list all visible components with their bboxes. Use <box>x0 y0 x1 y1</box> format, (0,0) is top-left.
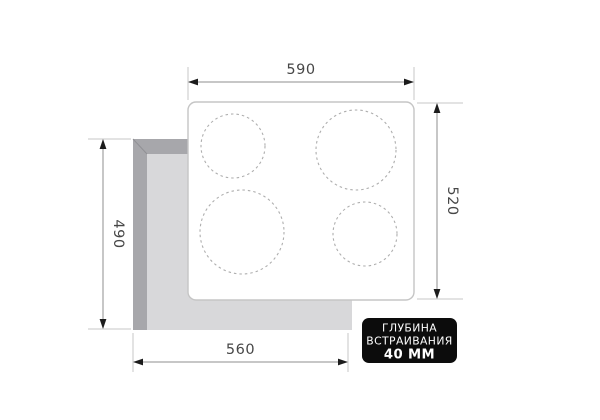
dimension-bottom-width: 560 <box>133 333 348 372</box>
dimension-value-left: 490 <box>110 219 126 248</box>
arrow-left-icon <box>188 79 198 86</box>
dimension-value-top: 590 <box>286 62 315 78</box>
arrow-right-icon <box>404 79 414 86</box>
depth-badge: ГЛУБИНА ВСТРАИВАНИЯ 40 ММ <box>362 318 457 363</box>
arrow-down-icon <box>100 319 107 329</box>
dimension-top-width: 590 <box>188 62 414 100</box>
diagram-canvas: 590 520 490 560 <box>0 0 600 420</box>
cutout-bevel-left <box>133 139 147 330</box>
arrow-right-icon <box>338 359 348 366</box>
dimension-value-bottom: 560 <box>226 342 255 358</box>
badge-line-1: ГЛУБИНА <box>382 322 437 335</box>
arrow-down-icon <box>434 289 441 299</box>
dimension-left-height: 490 <box>88 139 131 329</box>
arrow-up-icon <box>100 139 107 149</box>
hob-panel-group <box>188 102 414 300</box>
dimension-right-height: 520 <box>417 103 463 299</box>
hob-panel <box>188 102 414 300</box>
installation-diagram: 590 520 490 560 <box>0 0 600 420</box>
arrow-up-icon <box>434 103 441 113</box>
badge-line-2: ВСТРАИВАНИЯ <box>366 335 452 348</box>
badge-line-3: 40 ММ <box>384 348 435 363</box>
arrow-left-icon <box>133 359 143 366</box>
dimension-value-right: 520 <box>444 186 460 215</box>
